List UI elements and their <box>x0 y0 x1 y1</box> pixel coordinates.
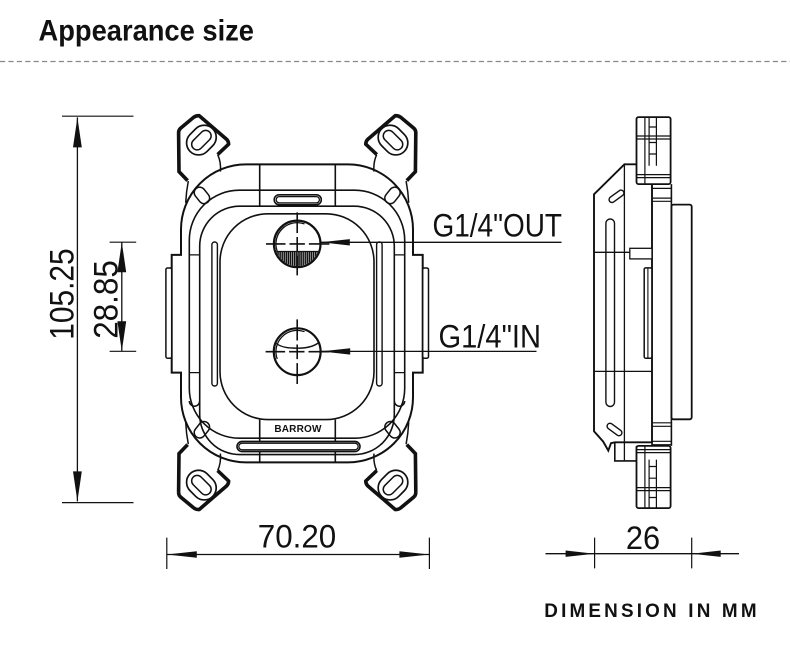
svg-text:DIMENSION IN MM: DIMENSION IN MM <box>544 601 760 622</box>
svg-text:28.85: 28.85 <box>88 260 126 339</box>
svg-text:26: 26 <box>626 520 660 556</box>
svg-text:BARROW: BARROW <box>274 424 322 435</box>
svg-text:Appearance size: Appearance size <box>39 14 255 47</box>
svg-text:G1/4"OUT: G1/4"OUT <box>433 208 563 244</box>
svg-text:G1/4"IN: G1/4"IN <box>439 318 542 354</box>
svg-text:70.20: 70.20 <box>258 519 337 555</box>
svg-text:105.25: 105.25 <box>43 248 81 340</box>
